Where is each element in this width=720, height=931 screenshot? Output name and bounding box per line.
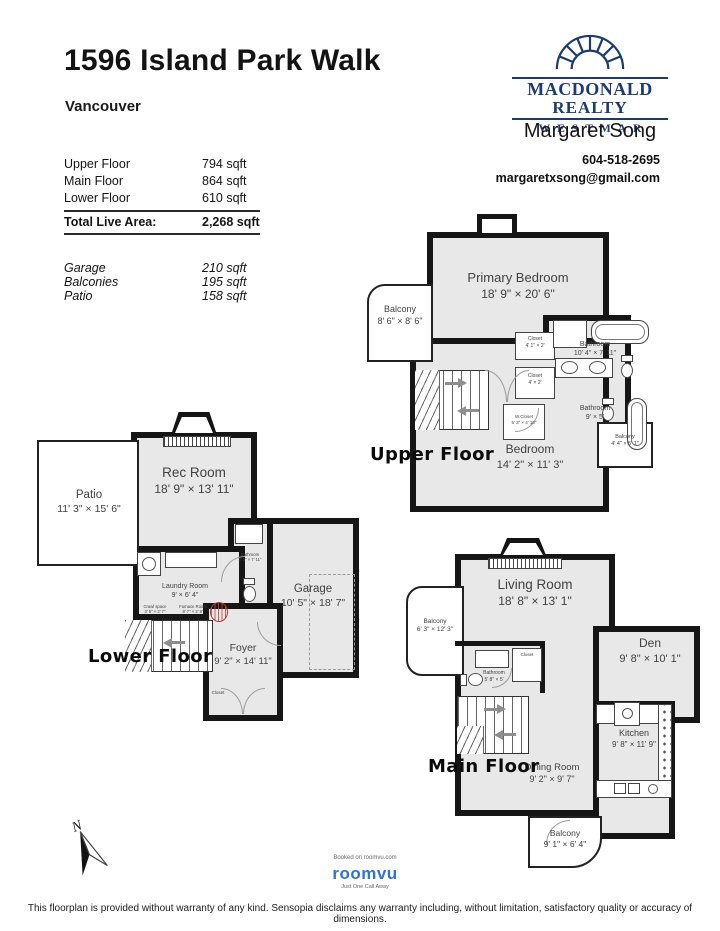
total-value: 2,268 sqft: [202, 215, 260, 229]
area-label: Upper Floor: [64, 157, 202, 171]
hearth: [163, 436, 231, 447]
area-value: 210 sqft: [202, 261, 246, 275]
washer-drum-icon: [142, 557, 156, 571]
area-label: Main Floor: [64, 174, 202, 188]
room-label: Furnace Room 8' 7" × 2' 8": [175, 604, 211, 615]
floor-title: Lower Floor: [88, 646, 212, 667]
furnace-icon: [210, 602, 228, 622]
disclaimer-text: This floorplan is provided without warra…: [0, 903, 720, 925]
room-label: Bathroom 5' 8" × 5': [472, 670, 516, 683]
chimney: [477, 214, 517, 238]
chimney: [170, 412, 218, 438]
room-label: Patio 11' 3" × 15' 6": [41, 488, 137, 517]
area-row: Main Floor 864 sqft: [64, 174, 260, 188]
room-label: Balcony 9' 1" × 6' 4": [528, 828, 602, 850]
room-label: Closet: [205, 690, 231, 696]
svg-text:N: N: [69, 817, 86, 836]
room-label: Garage 10' 5" × 18' 7": [267, 582, 359, 611]
sink-icon: [614, 783, 626, 794]
main-floor-plan: Living Room 18' 8" × 13' 1" Balcony 6' 3…: [400, 538, 712, 883]
vanity-icon: [475, 650, 509, 668]
area-row: Upper Floor 794 sqft: [64, 157, 260, 171]
room-label: Laundry Room 9' × 6' 4": [139, 582, 231, 600]
area-label: Lower Floor: [64, 191, 202, 205]
sink-icon: [561, 361, 578, 374]
floor-title: Upper Floor: [370, 444, 494, 465]
area-row: Balconies 195 sqft: [64, 275, 260, 289]
stairs-winder: [457, 726, 484, 754]
sink-icon: [589, 361, 606, 374]
area-label: Balconies: [64, 275, 202, 289]
sink-icon: [628, 783, 640, 794]
room-label: Den 9' 8" × 10' 1": [605, 636, 695, 666]
area-value: 195 sqft: [202, 275, 246, 289]
toilet-bowl-icon: [621, 363, 633, 378]
room-label: Primary Bedroom 18' 9" × 20' 6": [437, 270, 599, 302]
chimney: [498, 538, 548, 560]
total-label: Total Live Area:: [64, 215, 202, 229]
stairs-winder: [415, 370, 440, 430]
room-label: Living Room 18' 8" × 13' 1": [458, 576, 612, 609]
branding-tagline: Just One Call Away: [310, 884, 420, 891]
toilet-tank-icon: [460, 674, 467, 686]
room-label: Rec Room 18' 9" × 13' 11": [133, 464, 255, 497]
sink-icon: [235, 524, 263, 544]
floor-title: Main Floor: [428, 756, 539, 777]
page-title: 1596 Island Park Walk: [64, 44, 381, 78]
room-label: Bathroom 10' 4" × 7' 11": [557, 340, 633, 358]
area-label: Garage: [64, 261, 202, 275]
room-label: Kitchen 9' 8" × 11' 9": [596, 728, 672, 750]
room-label: Closet: [512, 652, 542, 658]
room-label: Foyer 9' 2" × 14' 11": [203, 642, 283, 668]
dish-icon: [648, 784, 658, 794]
room-label: Bathroom 2' 2" × 7' 11": [231, 552, 269, 563]
stairs-down-arrow-icon: [457, 406, 479, 416]
bathroom-wall: [455, 641, 545, 646]
branding-booked: Booked on roomvu.com: [310, 855, 420, 863]
brokerage-name-line1: MACDONALD: [512, 80, 668, 99]
stairs-down-arrow-icon: [494, 730, 516, 740]
agent-email: margaretxsong@gmail.com: [440, 169, 660, 187]
floorplan-page: 1596 Island Park Walk Vancouver MACDONAL…: [0, 0, 720, 931]
fan-window-icon: [544, 34, 636, 71]
area-value: 864 sqft: [202, 174, 246, 188]
area-row: Patio 158 sqft: [64, 289, 260, 303]
agent-contact: 604-518-2695 margaretxsong@gmail.com: [440, 151, 660, 187]
room-label: Closet 4' × 2': [515, 373, 555, 386]
area-value: 794 sqft: [202, 157, 246, 171]
hearth: [488, 558, 562, 569]
area-value: 158 sqft: [202, 289, 246, 303]
compass-north-icon: N: [62, 815, 112, 882]
room-label: Crawl space 3' 5" × 2' 7": [135, 604, 175, 615]
burner-icon: [622, 708, 633, 719]
laundry-counter: [165, 552, 217, 568]
toilet-bowl-icon: [243, 586, 256, 602]
room-label: Balcony 4' 4" × 5' 1": [599, 434, 651, 448]
agent-name: Margaret Song: [512, 120, 668, 143]
room-label: Balcony 6' 3" × 12' 3": [407, 618, 463, 635]
roomvu-logo: roomvu: [310, 863, 420, 884]
total-area-row: Total Live Area: 2,268 sqft: [64, 215, 260, 229]
room-label: Bathroom 9' × 5': [563, 404, 627, 422]
area-label: Patio: [64, 289, 202, 303]
room-label: Closet 4' 1" × 2': [515, 336, 555, 349]
city-subtitle: Vancouver: [65, 98, 141, 115]
room-label: W.Closet 5' 3" × 4' 10": [503, 414, 545, 426]
stairs-up-arrow-icon: [445, 378, 467, 388]
table-rule: [64, 210, 260, 212]
upper-floor-plan: Balcony 8' 6" × 8' 6" Primary Bedroom 18…: [365, 212, 663, 524]
roomvu-branding: Booked on roomvu.com roomvu Just One Cal…: [310, 855, 420, 891]
lower-floor-plan: Patio 11' 3" × 15' 6" Rec Room 18' 9" × …: [35, 406, 365, 721]
area-row: Lower Floor 610 sqft: [64, 191, 260, 205]
area-row: Garage 210 sqft: [64, 261, 260, 275]
area-value: 610 sqft: [202, 191, 246, 205]
room-label: Balcony 8' 6" × 8' 6": [368, 304, 432, 327]
table-rule: [64, 233, 260, 235]
stairs-up-arrow-icon: [484, 704, 506, 714]
agent-phone: 604-518-2695: [440, 151, 660, 169]
brokerage-name-line2: REALTY: [512, 99, 668, 117]
